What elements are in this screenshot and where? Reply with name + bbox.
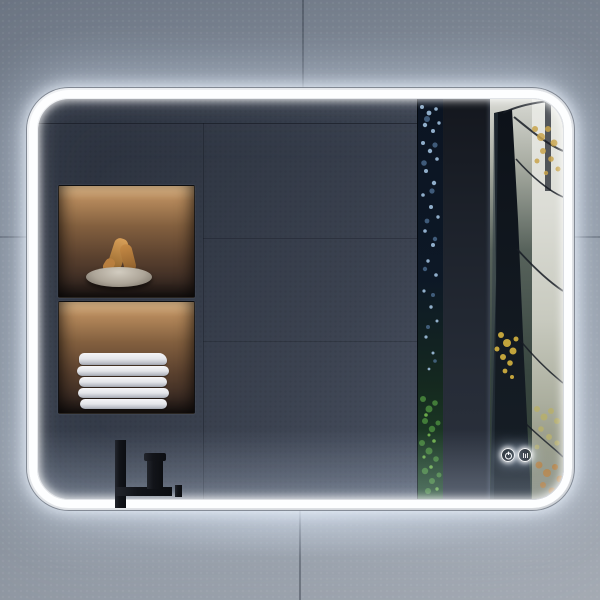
tile-grout-line [302, 0, 304, 90]
power-button[interactable] [501, 448, 515, 462]
reflected-tile-seam [203, 123, 204, 499]
reflected-tile-seam [203, 238, 417, 239]
folded-towel [80, 399, 167, 409]
tile-grout-line [0, 236, 29, 238]
reflected-tile-seam [203, 341, 417, 342]
folded-towel [79, 353, 167, 365]
bathroom-scene [0, 0, 600, 600]
lower-wall-niche [58, 301, 195, 414]
folded-towel [77, 366, 169, 376]
wall-edge-line [417, 99, 418, 499]
reflected-tile-seam [38, 123, 417, 124]
defog-icon [521, 451, 530, 460]
towel-stack [76, 353, 170, 410]
tile-grout-line [572, 236, 600, 238]
forest-reflection [417, 99, 563, 499]
defog-button[interactable] [518, 448, 532, 462]
touch-control-panel [501, 448, 532, 462]
forest-detail [417, 99, 563, 499]
stone-bowl [86, 267, 152, 287]
folded-towel [79, 377, 167, 387]
power-icon [504, 451, 513, 460]
upper-wall-niche [58, 185, 195, 298]
led-mirror [27, 88, 574, 510]
mirror-glass [38, 99, 563, 499]
folded-towel [78, 388, 169, 398]
